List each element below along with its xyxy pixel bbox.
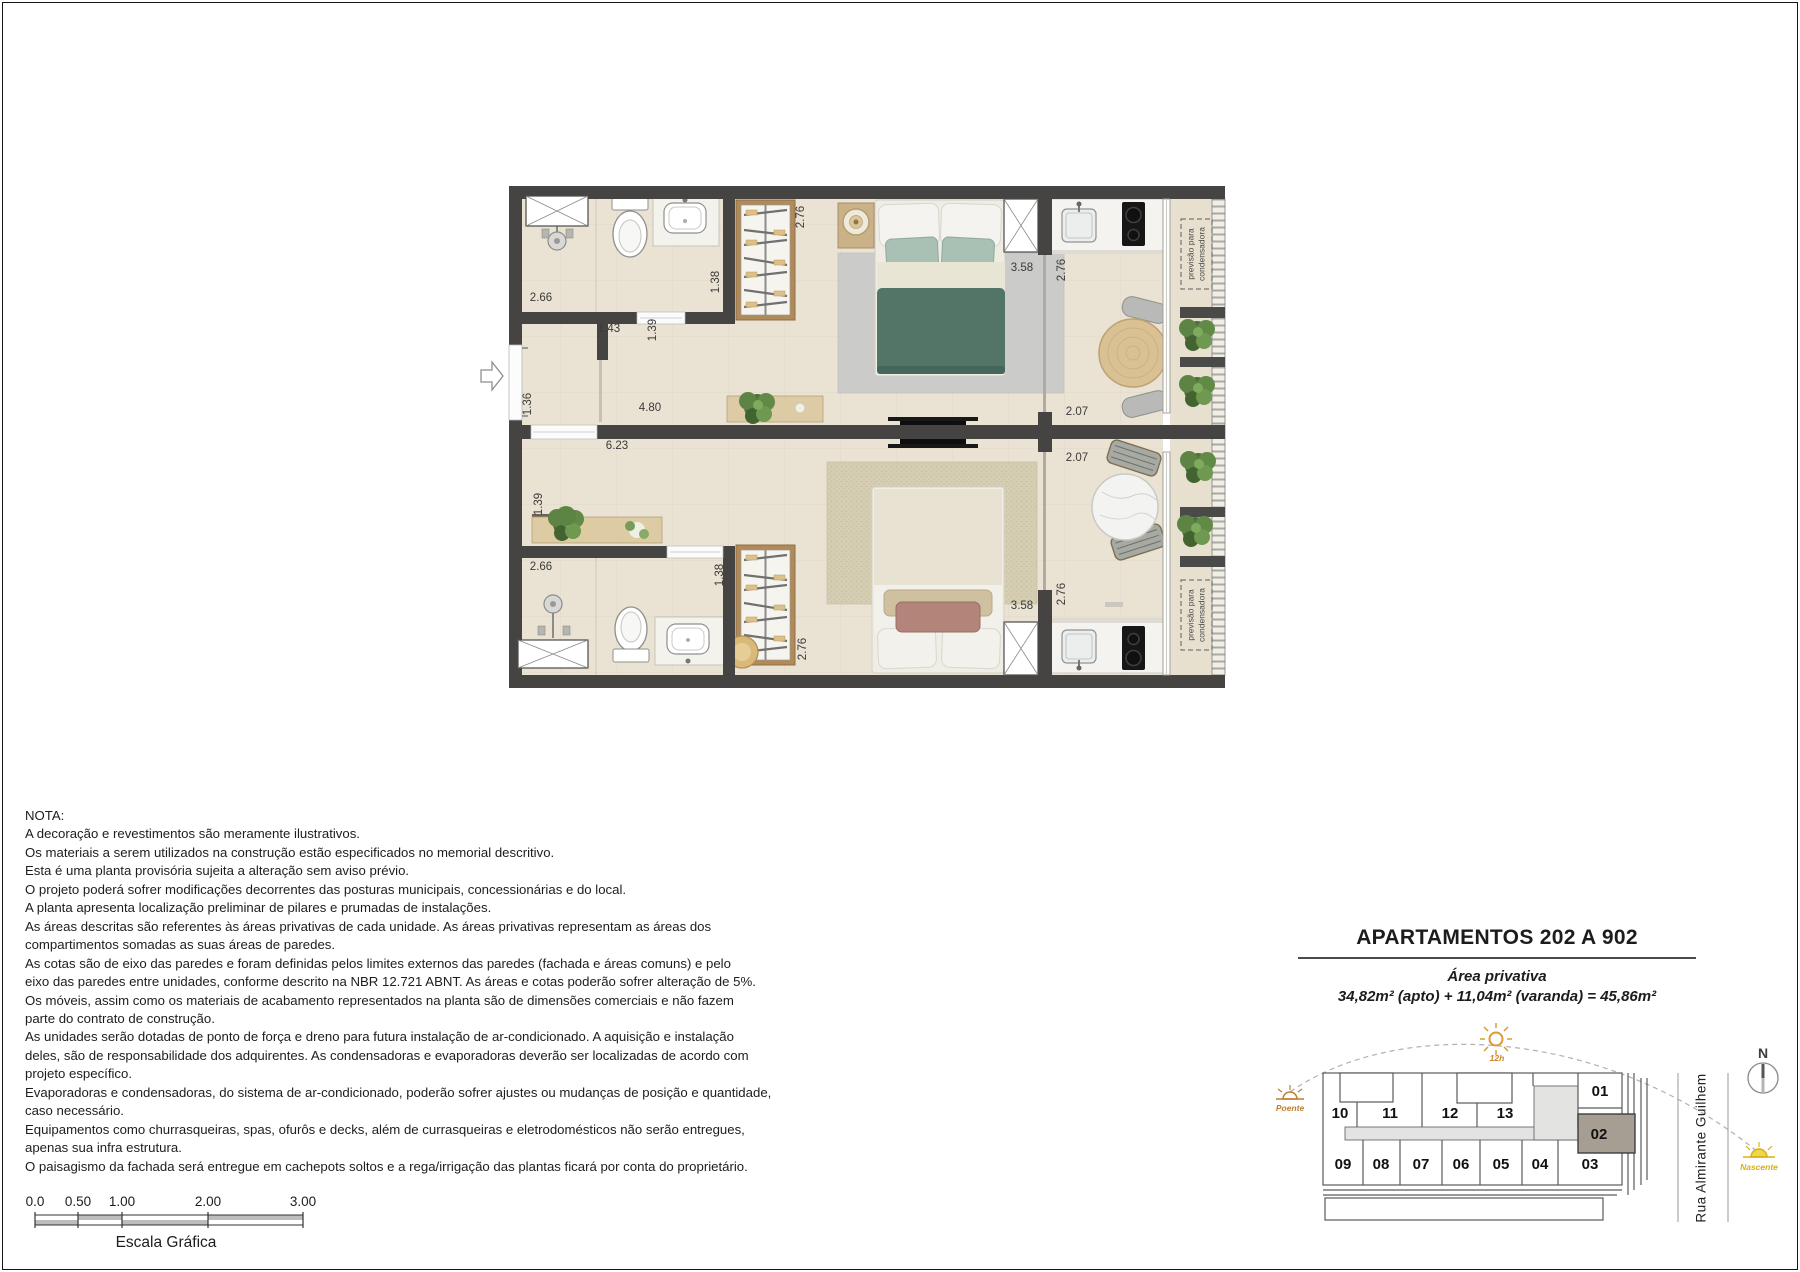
scale-caption: Escala Gráfica xyxy=(116,1234,217,1251)
dim-label: 3.58 xyxy=(1011,262,1033,274)
note-line: Os móveis, assim como os materiais de ac… xyxy=(25,992,771,1010)
unit-label-07: 07 xyxy=(1413,1156,1430,1173)
key-plan: 01 02 03 04 05 06 07 08 09 10 11 12 13 R… xyxy=(1276,1023,1778,1223)
unit-label-06: 06 xyxy=(1453,1156,1470,1173)
dim-label: 2.07 xyxy=(1066,406,1088,418)
floor-plan-sheet: previsão para condensadora previsão para… xyxy=(0,0,1800,1272)
note-line: apenas sua infra estrutura. xyxy=(25,1139,771,1157)
dining-table xyxy=(1099,319,1167,387)
glass-partition xyxy=(1043,452,1046,590)
scale-tick-label: 0.0 xyxy=(26,1194,45,1209)
shaft-hatch xyxy=(518,640,588,668)
tv-unit xyxy=(888,439,978,448)
dim-label: 2.76 xyxy=(1056,583,1068,605)
note-line: deles, são de responsabilidade dos adqui… xyxy=(25,1047,771,1065)
dim-label: 4.80 xyxy=(639,402,661,414)
note-line: parte do contrato de construção. xyxy=(25,1010,771,1028)
unit-label-05: 05 xyxy=(1493,1156,1510,1173)
console-bench xyxy=(727,392,823,424)
scale-bar: 0.0 0.50 1.00 2.00 3.00 xyxy=(26,1194,317,1251)
private-area-label: Área privativa xyxy=(1298,968,1696,985)
condenser-label: previsão para xyxy=(1185,228,1195,280)
svg-text:12h: 12h xyxy=(1490,1053,1505,1063)
unit-label-12: 12 xyxy=(1442,1105,1459,1122)
note-line: As áreas descritas são referentes às áre… xyxy=(25,918,771,936)
glass-partition xyxy=(1043,255,1046,412)
dim-label: 2.66 xyxy=(530,561,552,573)
note-line: A decoração e revestimentos são merament… xyxy=(25,825,771,843)
note-line: O paisagismo da fachada será entregue em… xyxy=(25,1158,771,1176)
unit-label-11: 11 xyxy=(1382,1105,1398,1122)
area-formula: 34,82m² (apto) + 11,04m² (varanda) = 45,… xyxy=(1298,988,1696,1005)
dim-label: 2.76 xyxy=(1056,259,1068,281)
sun-east-icon: Nascente xyxy=(1740,1142,1778,1172)
dim-label: 3.58 xyxy=(1011,600,1033,612)
note-line: As unidades serão dotadas de ponto de fo… xyxy=(25,1028,771,1046)
shaft-hatch xyxy=(1004,199,1038,252)
note-line: eixo das paredes entre unidades, conform… xyxy=(25,973,771,991)
floor-plan: previsão para condensadora previsão para… xyxy=(481,186,1225,688)
scale-bar-graphic xyxy=(35,1212,303,1228)
entry-arrow-icon xyxy=(481,362,503,390)
street-name: Rua Almirante Guilhem xyxy=(1694,1073,1709,1222)
svg-text:Nascente: Nascente xyxy=(1740,1162,1778,1172)
title-block: APARTAMENTOS 202 A 902 Área privativa 34… xyxy=(1298,926,1696,1005)
tv-unit xyxy=(888,417,978,426)
note-line: caso necessário. xyxy=(25,1102,771,1120)
svg-text:Poente: Poente xyxy=(1276,1103,1305,1113)
note-line: compartimentos somadas as suas áreas de … xyxy=(25,936,771,954)
dim-label: 1.38 xyxy=(714,564,726,586)
condenser-label: previsão para xyxy=(1185,589,1195,641)
scale-tick-label: 0.50 xyxy=(65,1194,91,1209)
unit-label-04: 04 xyxy=(1532,1156,1549,1173)
condenser-label: condensadora xyxy=(1196,588,1206,642)
dim-label: 2.76 xyxy=(797,638,809,660)
sheet-title: APARTAMENTOS 202 A 902 xyxy=(1298,926,1696,950)
shaft-hatch xyxy=(1004,622,1038,675)
note-line: projeto específico. xyxy=(25,1065,771,1083)
bed-double xyxy=(872,487,1004,673)
note-line: Equipamentos como churrasqueiras, spas, … xyxy=(25,1121,771,1139)
kitchen-counter xyxy=(1051,199,1163,254)
unit-label-13: 13 xyxy=(1497,1105,1514,1122)
scale-tick-label: 1.00 xyxy=(109,1194,135,1209)
scale-tick-label: 2.00 xyxy=(195,1194,221,1209)
sun-west-icon: Poente xyxy=(1276,1085,1305,1113)
title-rule xyxy=(1298,957,1696,959)
note-line: O projeto poderá sofrer modificações dec… xyxy=(25,881,771,899)
dim-label: 2.76 xyxy=(795,206,807,228)
dim-label: 1.38 xyxy=(710,271,722,293)
entry-door xyxy=(509,345,522,420)
note-line: As cotas são de eixo das paredes e foram… xyxy=(25,955,771,973)
dim-label: 6.23 xyxy=(606,440,628,452)
sun-noon-icon: 12h xyxy=(1480,1023,1512,1063)
note-line: Evaporadoras e condensadoras, do sistema… xyxy=(25,1084,771,1102)
bed-double xyxy=(875,200,1005,376)
unit-label-03: 03 xyxy=(1582,1156,1599,1173)
note-line: Esta é uma planta provisória sujeita a a… xyxy=(25,862,771,880)
note-line: Os materiais a serem utilizados na const… xyxy=(25,844,771,862)
shaft-hatch xyxy=(526,196,588,226)
dim-label: 1.43 xyxy=(598,323,620,335)
toilet-tank xyxy=(613,649,649,662)
dim-label: 1.36 xyxy=(522,393,534,415)
dim-label: 1.39 xyxy=(533,493,545,515)
wardrobe-closet xyxy=(736,200,795,320)
dim-label: 1.39 xyxy=(647,319,659,341)
svg-text:N: N xyxy=(1758,1045,1768,1061)
dim-label: 2.66 xyxy=(530,292,552,304)
dining-table xyxy=(1092,474,1158,540)
core xyxy=(1534,1086,1578,1140)
unit-label-09: 09 xyxy=(1335,1156,1352,1173)
unit-label-02: 02 xyxy=(1591,1126,1608,1143)
notes-heading: NOTA: xyxy=(25,807,771,825)
north-compass-icon: N xyxy=(1748,1045,1778,1093)
door-leaf xyxy=(599,360,602,422)
dim-label: 2.07 xyxy=(1066,452,1088,464)
unit-label-01: 01 xyxy=(1592,1083,1609,1100)
notes-block: NOTA: A decoração e revestimentos são me… xyxy=(25,807,771,1176)
note-line: A planta apresenta localização prelimina… xyxy=(25,899,771,917)
condenser-label: condensadora xyxy=(1196,227,1206,281)
unit-label-08: 08 xyxy=(1373,1156,1390,1173)
unit-label-10: 10 xyxy=(1332,1105,1349,1122)
scale-tick-label: 3.00 xyxy=(290,1194,316,1209)
